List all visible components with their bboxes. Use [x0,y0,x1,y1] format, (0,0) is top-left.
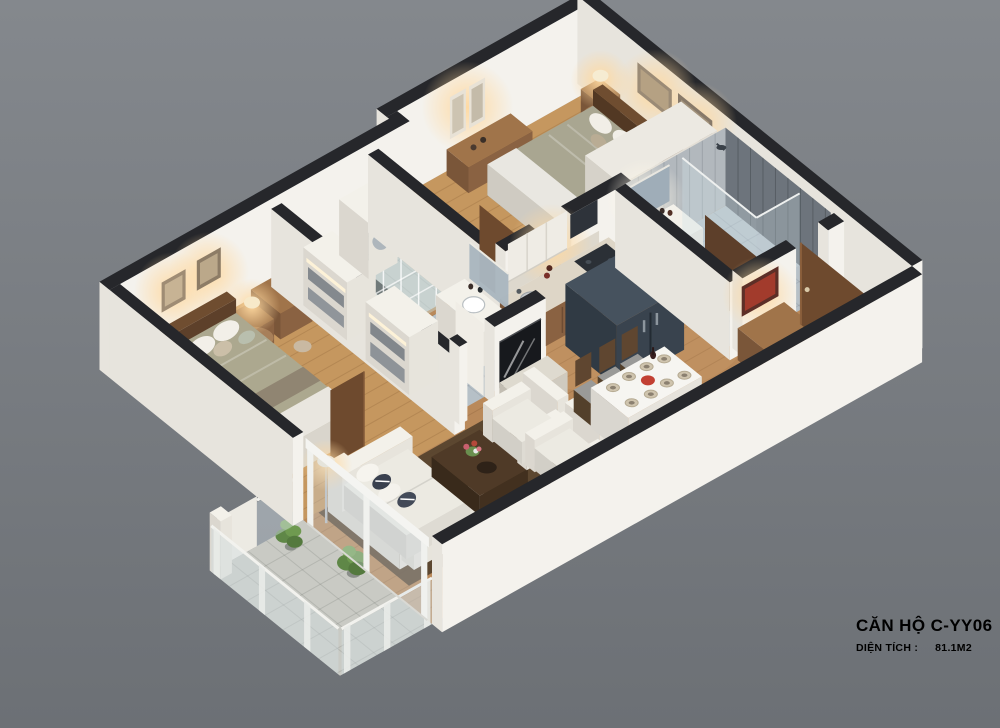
caption-block: CĂN HỘ C-YY06 DIỆN TÍCH : 81.1M2 [856,616,972,654]
floorplan-render-page: CĂN HỘ C-YY06 DIỆN TÍCH : 81.1M2 [0,0,1000,728]
area-value: 81.1M2 [935,642,972,654]
apartment-title: CĂN HỘ C-YY06 [856,616,972,636]
area-label: DIỆN TÍCH : [856,642,918,654]
floorplan-3d-render [0,0,1000,728]
